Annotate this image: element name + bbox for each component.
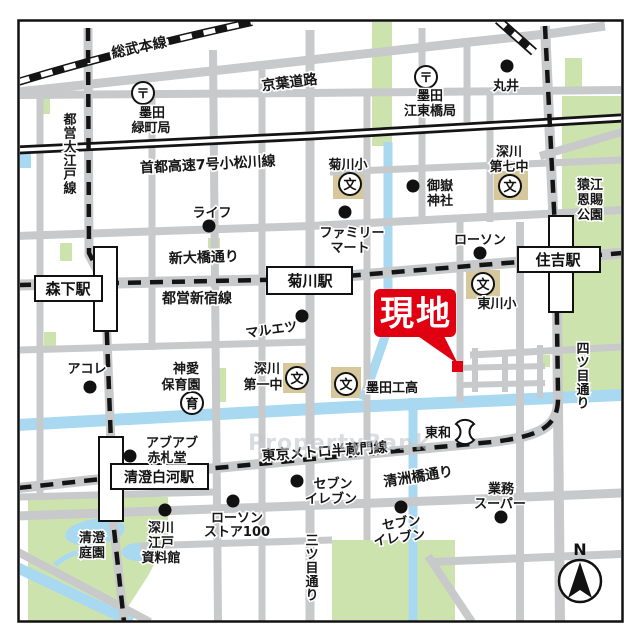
label-lawson100: ストア100 (204, 525, 270, 540)
map-page: 森下駅 菊川駅 住吉駅 清澄白河駅 〒 〒 (0, 0, 640, 640)
station-kikukawa-label: 菊川駅 (287, 272, 333, 290)
label-yotsume: 四ツ目通り (576, 342, 589, 412)
label-shin-ohashi: 新大橋通り (169, 248, 240, 267)
poi-dot-edo-museum (159, 504, 172, 517)
station-sumiyoshi-label: 住吉駅 (535, 251, 581, 269)
label-lawson: ローソン (454, 233, 506, 248)
road-minor (455, 366, 545, 368)
station-morishita-label: 森下駅 (45, 280, 91, 298)
label-abuabu: アブアブ (146, 435, 198, 451)
label-shinai-nursery: 神愛 (173, 361, 199, 377)
school-glyph: 文 (339, 377, 353, 393)
nursery-glyph: 育 (185, 396, 198, 412)
label-family-mart: マート (330, 241, 369, 256)
watermark: PropertyBank (248, 431, 431, 456)
label-acole: アコレ (67, 362, 106, 377)
label-kiyosumi-garden: 清澄 (79, 530, 106, 546)
label-family-mart: ファミリー (319, 226, 384, 241)
label-kikukawa-elem: 菊川小 (328, 157, 367, 173)
label-edo-museum: 深川 (148, 520, 174, 536)
label-sarue-park: 猿江 (576, 177, 603, 193)
poi-dot-family-mart (339, 206, 352, 219)
poi-dot-abuabu (124, 450, 137, 463)
site-marker (452, 361, 463, 372)
green-patch (588, 300, 608, 312)
label-marui: 丸井 (492, 78, 519, 94)
label-fukagawa1: 深川 (254, 361, 280, 377)
label-seven-west: イレブン (305, 491, 357, 507)
label-mitake: 神社 (427, 193, 453, 209)
poi-dot-seven-east (395, 501, 408, 514)
label-kotobashi-po: 墨田 (417, 89, 443, 104)
poi-dot-seven-west (291, 475, 304, 488)
poi-dot-maruetsu (296, 310, 309, 323)
school-glyph: 文 (503, 179, 517, 195)
label-higashikawa-elem: 東川小 (477, 296, 516, 312)
label-abuabu: 赤札堂 (147, 450, 186, 466)
poi-dot-marui (501, 60, 514, 73)
post-office-glyph: 〒 (419, 71, 432, 86)
label-fukagawa7: 深川 (496, 144, 522, 160)
label-gyomu-super: スーパー (474, 497, 526, 512)
school-glyph: 文 (476, 277, 490, 293)
poi-dot-lawson100 (227, 495, 240, 508)
label-midoricho-po: 墨田 (139, 106, 165, 121)
post-office-glyph: 〒 (136, 87, 149, 102)
label-seven-west: セブン (313, 476, 352, 492)
school-glyph: 文 (343, 177, 357, 193)
green-patch (60, 243, 72, 261)
label-oedo-line: 都営大江戸線 (62, 112, 77, 196)
station-kiyosumi-label: 清澄白河駅 (124, 469, 195, 486)
poi-dot-lawson (474, 247, 487, 260)
label-kiyosumi-garden: 庭園 (79, 545, 105, 561)
site-label: 現地 (380, 294, 452, 334)
label-fukagawa1: 第一中 (243, 377, 282, 393)
label-sarue-park: 恩賜 (577, 193, 603, 208)
label-sumida-tech: 墨田工高 (366, 380, 418, 396)
label-midoricho-po: 緑町局 (131, 120, 170, 136)
label-fukagawa7: 第七中 (489, 159, 528, 175)
label-lawson100: ローソン (211, 511, 263, 526)
label-sarue-park: 公園 (577, 207, 603, 223)
poi-dot-life (203, 220, 216, 233)
road-h90 (18, 90, 622, 95)
label-kotobashi-po: 江東橋局 (404, 103, 456, 119)
label-mitake: 御嶽 (426, 178, 454, 194)
poi-dot-gyomu-super (495, 511, 508, 524)
label-edo-museum: 資料館 (141, 550, 180, 566)
label-shinai-nursery: 保育園 (160, 377, 200, 393)
label-shinjuku-line: 都営新宿線 (161, 290, 232, 307)
south-park-area (332, 540, 455, 620)
label-gyomu-super: 業務 (487, 481, 515, 497)
poi-dot-acole (84, 381, 97, 394)
school-glyph: 文 (290, 371, 304, 387)
label-edo-museum: 江戸 (148, 535, 174, 551)
compass-n-label: N (573, 540, 586, 559)
map-canvas: 森下駅 菊川駅 住吉駅 清澄白河駅 〒 〒 (0, 0, 640, 640)
poi-dot-mitake (407, 180, 420, 193)
green-patch (565, 58, 582, 90)
label-life: ライフ (192, 206, 231, 221)
label-mitsume: 三ツ目通り (305, 534, 318, 604)
